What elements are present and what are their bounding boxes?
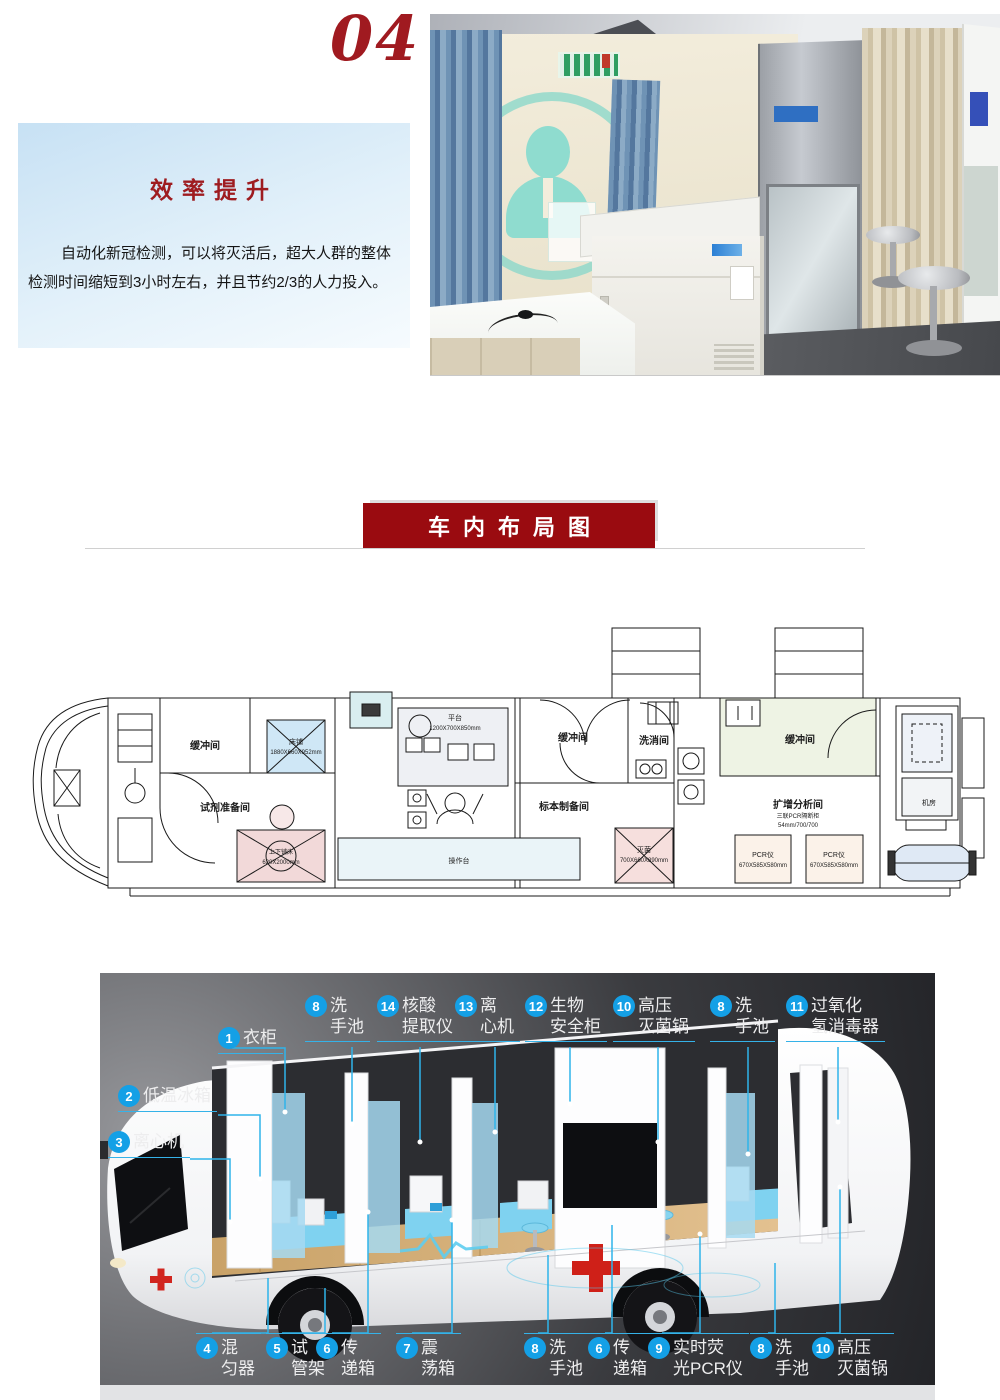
label-text-line: 混 — [221, 1337, 255, 1358]
photo-biosafety-cabinet-label — [774, 106, 818, 122]
label-number-badge: 3 — [108, 1131, 130, 1153]
label-number-badge: 11 — [786, 995, 808, 1017]
layout-banner-title: 车内布局图 — [363, 503, 655, 548]
diagram-label-nucleic-extractor: 14 核酸提取仪 — [377, 995, 459, 1042]
label-text-line: 洗 — [330, 995, 364, 1016]
diagram-label-transfer-box-1: 6 传递箱 — [316, 1333, 381, 1383]
label-text-line: 灭菌锅 — [837, 1358, 888, 1379]
diagram-label-wardrobe: 1 衣柜 — [218, 1027, 283, 1054]
diagram-label-oscillator: 7 震荡箱 — [396, 1333, 461, 1383]
label-number-badge: 8 — [305, 995, 327, 1017]
sterilizer-dims: 700X660X890mm — [620, 858, 668, 864]
label-text-line: 洗 — [549, 1337, 583, 1358]
diagram-label-h2o2-sterilizer: 11 过氧化氢消毒器 — [786, 995, 885, 1042]
diagram-bottom-strip — [100, 1385, 935, 1400]
room-label-buffer-rear: 缓冲间 — [784, 733, 815, 746]
diagram-label-wash-basin-4: 8 洗手池 — [750, 1333, 815, 1383]
photo-curtain-right — [862, 28, 974, 352]
bench-label: 平台 — [448, 713, 462, 722]
counter-label: 操作台 — [449, 856, 470, 865]
label-text-line: 递箱 — [613, 1358, 647, 1379]
label-text-line: 光PCR仪 — [673, 1358, 743, 1379]
pcr2-dims: 670X585X580mm — [810, 863, 858, 869]
label-number-badge: 10 — [613, 995, 635, 1017]
amp-note-2: 54mm/700/700 — [778, 823, 819, 829]
room-label-buffer-mid: 缓冲间 — [557, 731, 588, 744]
label-text-line: 震 — [421, 1337, 455, 1358]
amp-note-1: 三联PCR隔断柜 — [777, 812, 820, 820]
photo-stool-front-base — [906, 340, 962, 356]
photo-fume-hood-tape — [970, 92, 988, 126]
label-text-line: 灭菌锅 — [638, 1016, 689, 1037]
label-number-badge: 4 — [196, 1337, 218, 1359]
banner-divider-line — [85, 548, 865, 549]
room-label-reagent-prep: 试剂准备间 — [200, 801, 250, 814]
label-text-line: 心机 — [480, 1016, 514, 1037]
label-number-badge: 5 — [266, 1337, 288, 1359]
photo-biosafety-cabinet-glass — [766, 184, 860, 342]
bus-cutaway-diagram: 1 衣柜 8 洗手池 14 核酸提取仪 13 离心机 12 生物安全柜 10 高… — [100, 973, 935, 1385]
efficiency-line-2: 检测时间缩短到3小时左右，并且节约2/3的人力投入。 — [28, 268, 400, 297]
room-label-specimen-prep: 标本制备间 — [538, 800, 589, 813]
label-number-badge: 13 — [455, 995, 477, 1017]
diagram-label-transfer-box-2: 6 传递箱 — [588, 1333, 653, 1383]
label-number-badge: 2 — [118, 1085, 140, 1107]
label-text-line: 洗 — [775, 1337, 809, 1358]
label-text-line: 高压 — [638, 995, 689, 1016]
bed-dims: 1880X660X952mm — [270, 750, 321, 756]
diagram-label-centrifuge-13: 13 离心机 — [455, 995, 520, 1042]
diagram-label-centrifuge-3: 3 离心机 — [108, 1131, 190, 1158]
bunk-label: 上下铺床 — [269, 848, 293, 856]
pcr1-label: PCR仪 — [752, 851, 774, 859]
efficiency-title: 效率提升 — [18, 171, 410, 205]
label-text-line: 荡箱 — [421, 1358, 455, 1379]
label-text-line: 手池 — [775, 1358, 809, 1379]
efficiency-line-1: 自动化新冠检测，可以将灭活后，超大人群的整体 — [28, 239, 400, 268]
room-label-washing: 洗消间 — [639, 734, 669, 747]
diagram-label-biosafety-cabinet: 12 生物安全柜 — [525, 995, 607, 1042]
label-number-badge: 8 — [750, 1337, 772, 1359]
room-label-buffer-front: 缓冲间 — [189, 739, 220, 752]
label-text-line: 洗 — [735, 995, 769, 1016]
bed-label: 床铺 — [289, 737, 303, 746]
section-number: 04 — [330, 2, 420, 75]
label-number-badge: 6 — [316, 1337, 338, 1359]
label-number-badge: 8 — [710, 995, 732, 1017]
photo-freezer-logo — [712, 244, 742, 256]
label-text-line: 递箱 — [341, 1358, 375, 1379]
room-label-machine: 机房 — [922, 798, 936, 807]
label-number-badge: 10 — [812, 1337, 834, 1359]
label-text-line: 安全柜 — [550, 1016, 601, 1037]
photo-wall-logo-person-head — [526, 126, 570, 178]
label-text-line: 高压 — [837, 1337, 888, 1358]
photo-red-tag — [602, 54, 610, 68]
label-text-line: 离心机 — [133, 1131, 184, 1152]
diagram-label-wash-basin-3: 8 洗手池 — [524, 1333, 589, 1383]
diagram-label-wash-basin-2: 8 洗手池 — [710, 995, 775, 1042]
label-number-badge: 12 — [525, 995, 547, 1017]
label-number-badge: 7 — [396, 1337, 418, 1359]
label-text-line: 核酸 — [402, 995, 453, 1016]
photo-exit-sign — [558, 52, 620, 78]
diagram-label-realtime-pcr: 9 实时荧光PCR仪 — [648, 1333, 749, 1383]
label-text-line: 手池 — [735, 1016, 769, 1037]
floorplan-equipment — [237, 692, 976, 883]
floorplan-drawing: 缓冲间 试剂准备间 标本制备间 缓冲间 洗消间 缓冲间 扩增分析间 三联PCR隔… — [0, 618, 1000, 910]
photo-freezer-card — [730, 266, 754, 300]
label-text-line: 过氧化 — [811, 995, 879, 1016]
diagram-label-wash-basin-1: 8 洗手池 — [305, 995, 370, 1042]
label-text-line: 传 — [613, 1337, 647, 1358]
bunk-dims: 620X2000mm — [262, 860, 299, 866]
label-text-line: 提取仪 — [402, 1016, 453, 1037]
pcr2-label: PCR仪 — [823, 851, 845, 859]
label-number-badge: 9 — [648, 1337, 670, 1359]
photo-mouse — [518, 310, 533, 319]
photo-stool-back-stem — [890, 242, 896, 280]
efficiency-box: 效率提升 自动化新冠检测，可以将灭活后，超大人群的整体 检测时间缩短到3小时左右… — [18, 123, 410, 348]
diagram-label-autoclave-1: 10 高压灭菌锅 — [613, 995, 695, 1042]
bench-dims: 1200X700X850mm — [429, 726, 480, 732]
label-text-line: 实时荧 — [673, 1337, 743, 1358]
label-number-badge: 1 — [218, 1027, 240, 1049]
label-text-line: 衣柜 — [243, 1027, 277, 1048]
label-number-badge: 6 — [588, 1337, 610, 1359]
label-text-line: 匀器 — [221, 1358, 255, 1379]
lab-interior-photo — [430, 14, 1000, 376]
diagram-label-autoclave-2: 10 高压灭菌锅 — [812, 1333, 894, 1383]
diagram-label-mixer: 4 混匀器 — [196, 1333, 261, 1383]
efficiency-body: 自动化新冠检测，可以将灭活后，超大人群的整体 检测时间缩短到3小时左右，并且节约… — [28, 239, 400, 298]
label-text-line: 传 — [341, 1337, 375, 1358]
label-number-badge: 8 — [524, 1337, 546, 1359]
label-text-line: 生物 — [550, 995, 601, 1016]
label-number-badge: 14 — [377, 995, 399, 1017]
photo-stool-front-stem — [930, 286, 937, 344]
diagram-label-freezer: 2 低温冰箱 — [118, 1085, 217, 1112]
room-label-amplification: 扩增分析间 — [773, 798, 823, 811]
pcr1-dims: 670X585X580mm — [739, 863, 787, 869]
photo-freezer-vent — [714, 344, 754, 370]
label-text-line: 手池 — [549, 1358, 583, 1379]
label-text-line: 低温冰箱 — [143, 1085, 211, 1106]
page: 04 效率提升 自动化新冠检测，可以将灭活后，超大人群的整体 检测时间缩短到3小… — [0, 0, 1000, 1400]
photo-desk-cabinet — [430, 338, 580, 375]
label-text-line: 手池 — [330, 1016, 364, 1037]
label-text-line: 离 — [480, 995, 514, 1016]
label-text-line: 氢消毒器 — [811, 1016, 879, 1037]
sterilizer-label: 灭菌 — [637, 845, 651, 854]
